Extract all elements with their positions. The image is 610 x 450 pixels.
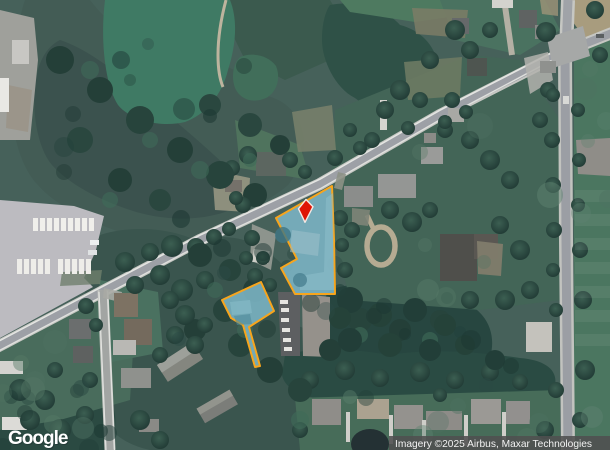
svg-text:Imagery ©2025 Airbus, Maxar Te: Imagery ©2025 Airbus, Maxar Technologies [395,439,592,450]
svg-text:Google: Google [8,428,68,449]
